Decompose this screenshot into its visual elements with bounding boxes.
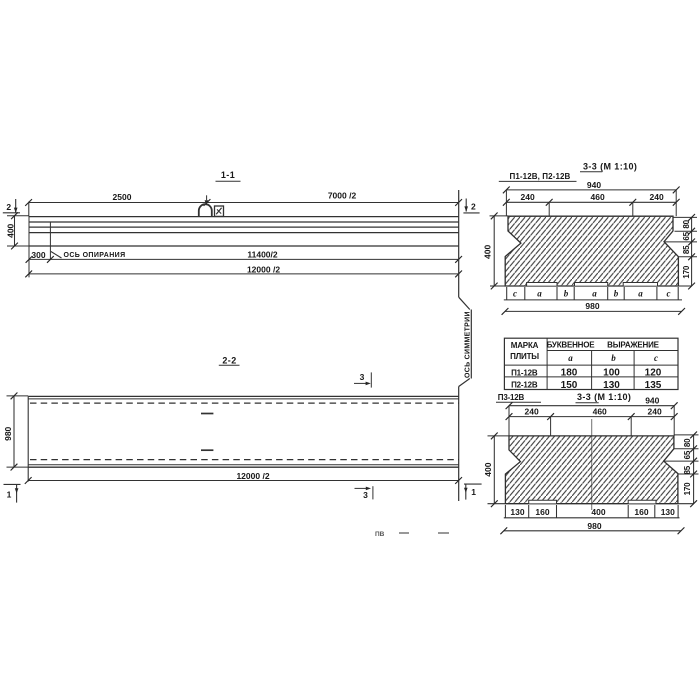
svg-text:940: 940 [645,395,659,405]
svg-text:МАРКА: МАРКА [511,341,539,350]
svg-text:400: 400 [483,245,493,259]
svg-text:170: 170 [682,265,691,278]
svg-text:80: 80 [682,219,691,228]
svg-text:240: 240 [650,192,664,202]
svg-text:3-3 (М 1:10): 3-3 (М 1:10) [577,392,631,402]
svg-text:c: c [667,289,671,299]
svg-text:980: 980 [3,426,13,440]
svg-text:1-1: 1-1 [221,170,235,180]
svg-text:2-2: 2-2 [222,356,236,366]
svg-text:130: 130 [510,507,524,517]
svg-text:b: b [564,289,569,299]
svg-text:400: 400 [6,223,16,237]
svg-text:400: 400 [591,507,605,517]
svg-text:3: 3 [360,372,365,382]
svg-text:b: b [614,289,619,299]
svg-text:180: 180 [561,368,578,379]
svg-text:12000 /2: 12000 /2 [247,265,280,275]
svg-text:БУКВЕННОЕ: БУКВЕННОЕ [547,341,596,350]
svg-text:135: 135 [645,380,662,391]
svg-text:150: 150 [561,380,578,391]
svg-text:1: 1 [471,487,476,497]
svg-text:c: c [513,289,517,299]
svg-text:160: 160 [535,507,549,517]
svg-text:460: 460 [593,406,607,416]
svg-text:160: 160 [634,507,648,517]
svg-text:П2-12В: П2-12В [511,381,538,390]
svg-text:ОСЬ ОПИРАНИЯ: ОСЬ ОПИРАНИЯ [64,252,126,259]
svg-text:a: a [568,353,573,363]
svg-text:П1-12В: П1-12В [511,368,538,377]
svg-text:170: 170 [683,482,692,495]
svg-text:400: 400 [483,462,493,476]
svg-text:85: 85 [683,465,692,474]
svg-text:300: 300 [31,250,45,260]
svg-text:940: 940 [587,180,601,190]
svg-text:980: 980 [587,521,601,531]
svg-text:2: 2 [471,202,476,212]
svg-text:240: 240 [525,406,539,416]
svg-text:120: 120 [645,368,662,379]
svg-text:65: 65 [683,450,692,459]
svg-text:a: a [537,289,542,299]
svg-text:65: 65 [682,231,691,240]
svg-text:130: 130 [603,380,620,391]
svg-text:ВЫРАЖЕНИЕ: ВЫРАЖЕНИЕ [607,341,660,350]
svg-text:П3-12В: П3-12В [498,393,525,402]
svg-text:460: 460 [591,192,605,202]
svg-text:240: 240 [648,406,662,416]
svg-text:240: 240 [521,192,535,202]
svg-text:11400/2: 11400/2 [247,249,278,259]
svg-text:ПВ: ПВ [375,531,385,538]
svg-text:85: 85 [682,245,691,254]
svg-text:3-3 (М 1:10): 3-3 (М 1:10) [583,161,637,171]
svg-text:100: 100 [603,368,620,379]
svg-text:2: 2 [6,202,11,212]
svg-text:3: 3 [363,490,368,500]
svg-text:ПЛИТЫ: ПЛИТЫ [510,352,539,361]
svg-text:a: a [592,289,597,299]
svg-text:7000 /2: 7000 /2 [328,191,357,201]
svg-text:c: c [654,353,658,363]
svg-text:a: a [638,289,643,299]
svg-text:П1-12В, П2-12В: П1-12В, П2-12В [510,172,571,181]
svg-text:2500: 2500 [113,192,132,202]
svg-text:b: b [611,353,616,363]
svg-text:80: 80 [683,438,692,447]
svg-text:1: 1 [7,490,12,500]
svg-text:12000 /2: 12000 /2 [236,471,269,481]
svg-text:130: 130 [661,507,675,517]
svg-text:ОСЬ СИММЕТРИИ: ОСЬ СИММЕТРИИ [464,311,471,378]
svg-text:980: 980 [585,301,599,311]
